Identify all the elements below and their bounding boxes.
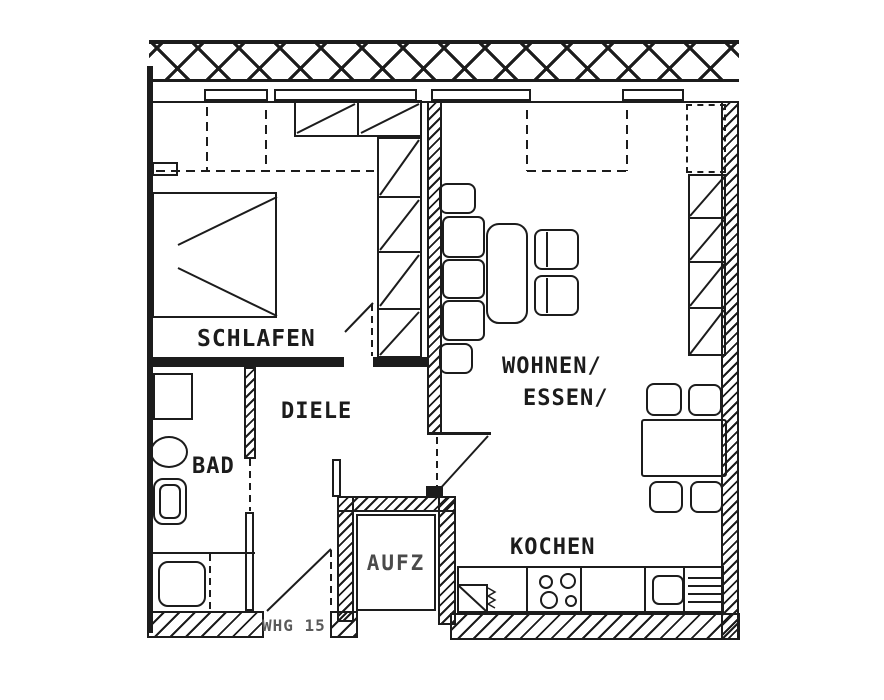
armchair-2 [534, 275, 579, 316]
room-label-bad: BAD [192, 454, 235, 479]
wardrobe-column [377, 137, 422, 358]
wall-schlafen-south-right [373, 357, 429, 367]
shower-inner [159, 484, 181, 519]
bathtub [158, 561, 206, 607]
elevator-door-hinge-block [426, 486, 443, 496]
skylight-dashed-living [527, 110, 627, 171]
dining-chair-2 [688, 384, 722, 416]
room-label-diele: DIELE [281, 399, 352, 424]
wardrobe-top [294, 100, 422, 137]
door-swing-bedroom [345, 303, 373, 332]
wall-center-schlafen-wohnen [427, 101, 442, 434]
chimney-step [152, 162, 178, 176]
dining-chair-1 [646, 383, 682, 416]
door-swing-living [438, 436, 488, 491]
armchair-1 [534, 229, 579, 270]
top-wall-inner-face [150, 101, 739, 103]
bed [152, 192, 277, 318]
sofa-armrest-top [439, 183, 476, 214]
exterior-wall-left [147, 66, 153, 633]
sofa-cushion-2 [442, 259, 485, 299]
room-label-schlafen: SCHLAFEN [197, 326, 316, 352]
entry-door-label: WHG 15 [262, 616, 326, 635]
wall-bad-diele-lower [245, 512, 254, 611]
sofa-cushion-1 [442, 216, 485, 258]
elevator-cab: AUFZ [356, 514, 436, 611]
exterior-wall-bottom-bath [147, 611, 264, 638]
wardrobe-right-wall [688, 174, 726, 356]
door-swing-entry [267, 549, 331, 611]
dining-chair-3 [649, 481, 683, 513]
floor-plan-canvas: AUFZ [0, 0, 884, 700]
room-label-kochen: KOCHEN [510, 535, 595, 560]
elevator-wall-right [438, 496, 456, 625]
elevator-label: AUFZ [367, 551, 426, 575]
kitchen-corner-unit [457, 584, 488, 613]
sofa-cushion-3 [442, 300, 485, 341]
bath-divider-line [150, 552, 255, 554]
wall-stub-above-elevator [332, 459, 341, 497]
sofa-armrest-bottom [439, 343, 473, 374]
elevator-wall-left [337, 496, 354, 622]
cabinet-open-dashed [686, 104, 726, 173]
bedroom-window-left [204, 89, 268, 101]
wall-center-stub [427, 432, 491, 435]
exterior-wall-top [149, 40, 739, 82]
living-window-right [622, 89, 684, 101]
dining-table [641, 419, 727, 477]
wall-bad-diele-upper [244, 367, 256, 459]
room-label-essen: ESSEN/ [523, 386, 608, 411]
kitchen-sink [652, 575, 684, 605]
toilet [150, 436, 188, 468]
coffee-table [486, 223, 528, 324]
washbasin-counter [153, 373, 193, 420]
dining-chair-4 [690, 481, 723, 513]
living-window-left [431, 89, 531, 101]
wall-schlafen-south-left [150, 357, 344, 367]
room-label-wohnen: WOHNEN/ [502, 354, 602, 379]
exterior-wall-bottom-kitchen [450, 613, 740, 640]
